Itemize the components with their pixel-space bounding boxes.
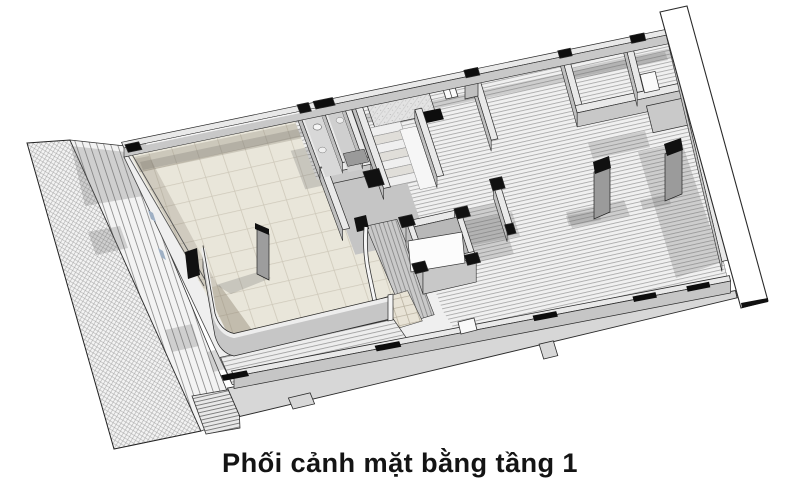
svg-text:Phối cảnh mặt bằng tầng 1: Phối cảnh mặt bằng tầng 1 — [222, 447, 578, 478]
